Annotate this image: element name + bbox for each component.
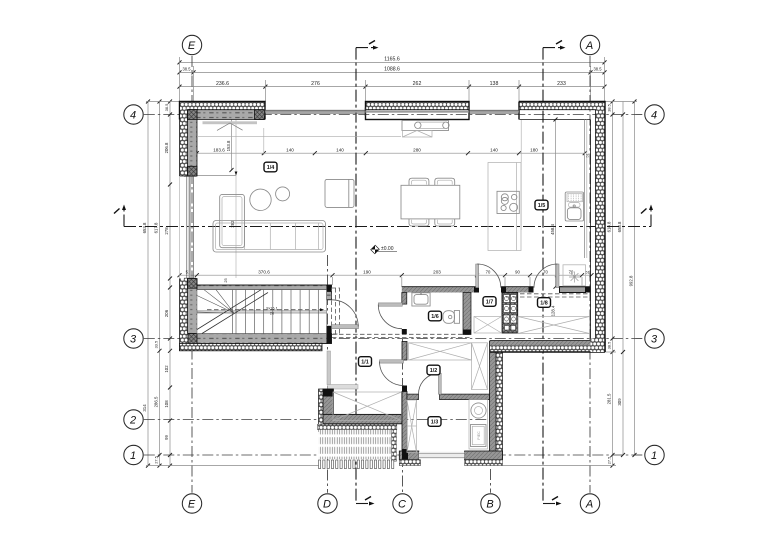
svg-text:458.4: 458.4 [550,224,555,235]
svg-text:309: 309 [617,398,622,406]
svg-text:70: 70 [543,269,548,274]
svg-text:180: 180 [530,147,538,152]
svg-text:27.5: 27.5 [154,456,159,464]
svg-text:128.4: 128.4 [551,305,556,316]
svg-text:4: 4 [651,109,657,121]
svg-text:1088.6: 1088.6 [384,67,400,73]
svg-text:370.6: 370.6 [258,269,270,274]
svg-text:C: C [398,498,406,510]
svg-text:1: 1 [651,450,657,462]
svg-text:3: 3 [651,333,658,345]
svg-text:±0.00: ±0.00 [381,246,394,252]
svg-text:140: 140 [286,147,294,152]
svg-text:314: 314 [142,404,147,412]
svg-text:1165.6: 1165.6 [384,57,400,63]
svg-text:286.5: 286.5 [154,396,159,407]
svg-text:38.5: 38.5 [164,104,169,112]
svg-text:183.6: 183.6 [213,147,225,152]
svg-text:153.8: 153.8 [226,140,231,151]
svg-text:278: 278 [164,227,169,235]
svg-text:38.5: 38.5 [183,67,192,72]
svg-text:281.5: 281.5 [607,393,612,404]
svg-text:2: 2 [129,414,136,426]
svg-text:102: 102 [164,365,169,373]
svg-text:1/2: 1/2 [430,368,438,374]
svg-text:1/1: 1/1 [361,360,369,366]
svg-text:108: 108 [164,400,169,408]
svg-text:206: 206 [164,309,169,317]
svg-text:A: A [585,498,593,510]
svg-text:33.5: 33.5 [154,341,159,349]
svg-text:51: 51 [585,270,589,274]
svg-text:203: 203 [433,269,441,274]
svg-text:70: 70 [486,269,491,274]
svg-text:1/7: 1/7 [486,300,494,306]
svg-text:206.8: 206.8 [164,142,169,153]
svg-text:38.5: 38.5 [594,67,603,72]
svg-text:280: 280 [413,147,421,152]
svg-text:D: D [323,498,331,510]
svg-text:E: E [188,40,196,52]
svg-text:1/5: 1/5 [538,203,546,209]
svg-text:262: 262 [413,81,422,87]
svg-text:9x16,1: 9x16,1 [266,306,277,310]
svg-text:190: 190 [363,269,371,274]
svg-text:140: 140 [490,147,498,152]
svg-text:90: 90 [515,269,520,274]
svg-text:1/3: 1/3 [431,420,439,426]
svg-text:99: 99 [164,435,169,440]
svg-text:992.8: 992.8 [629,275,634,286]
svg-text:236.6: 236.6 [216,81,229,87]
svg-text:140: 140 [336,147,344,152]
svg-text:A: A [585,40,593,52]
svg-text:1: 1 [130,450,136,462]
svg-text:233: 233 [557,81,566,87]
svg-text:27.5: 27.5 [607,457,612,465]
svg-text:26: 26 [270,312,274,316]
svg-text:653.8: 653.8 [142,222,147,233]
svg-text:1/6: 1/6 [431,314,439,320]
svg-text:1/8: 1/8 [540,301,548,307]
svg-text:276: 276 [311,81,320,87]
svg-text:25: 25 [223,278,228,282]
svg-text:B: B [486,498,493,510]
svg-text:38.5: 38.5 [607,104,612,112]
svg-text:3: 3 [130,333,137,345]
svg-text:E: E [188,498,196,510]
svg-text:38.5: 38.5 [607,342,612,350]
svg-text:138: 138 [490,81,499,87]
svg-text:1/4: 1/4 [267,165,275,171]
svg-text:PIEC: PIEC [477,431,481,440]
svg-text:617.8: 617.8 [154,222,159,233]
svg-text:4: 4 [130,109,136,121]
